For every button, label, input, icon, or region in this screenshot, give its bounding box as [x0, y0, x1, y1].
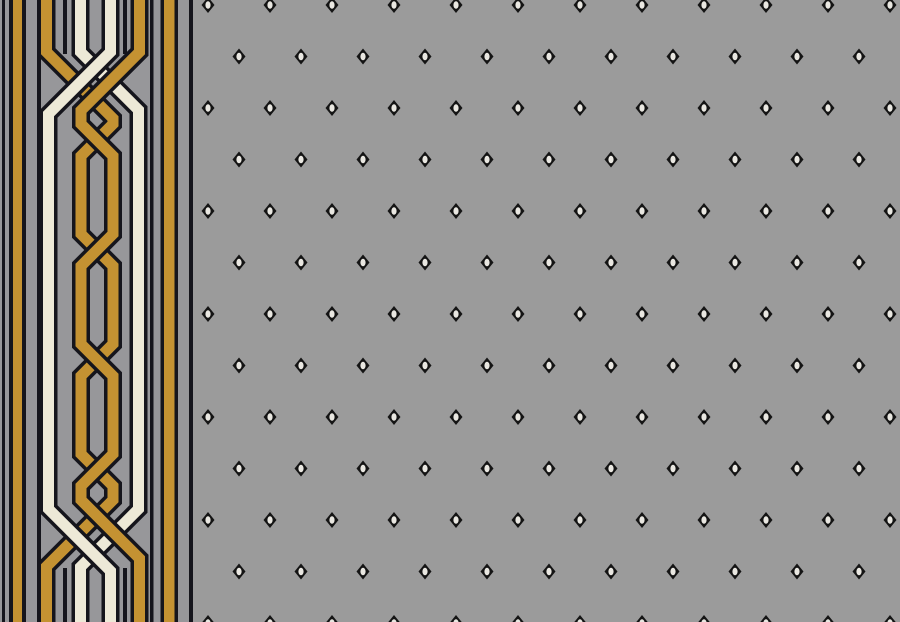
diamond-motif-center [887, 207, 892, 215]
diamond-motif-center [453, 516, 458, 524]
diamond-motif-center [515, 207, 520, 215]
diamond-motif-center [422, 362, 427, 370]
diamond-motif-center [577, 413, 582, 421]
diamond-motif-center [515, 104, 520, 112]
diamond-motif-center [453, 207, 458, 215]
diamond-motif-center [794, 568, 799, 576]
diamond-motif-center [763, 1, 768, 9]
diamond-motif-center [267, 104, 272, 112]
diamond-motif-center [298, 156, 303, 164]
diamond-motif-center [422, 465, 427, 473]
diamond-motif-center [577, 1, 582, 9]
diamond-motif-center [608, 465, 613, 473]
diamond-motif-center [205, 516, 210, 524]
diamond-motif-center [360, 156, 365, 164]
diamond-motif-center [856, 568, 861, 576]
diamond-motif-center [608, 259, 613, 267]
diamond-motif-center [391, 413, 396, 421]
diamond-motif-center [515, 413, 520, 421]
diamond-motif-center [391, 310, 396, 318]
border-stripe [150, 0, 154, 622]
diamond-motif-center [887, 413, 892, 421]
diamond-motif-center [794, 362, 799, 370]
diamond-motif-center [515, 516, 520, 524]
diamond-motif-center [763, 104, 768, 112]
diamond-motif-center [236, 156, 241, 164]
border-stripe [2, 0, 5, 622]
diamond-motif-center [546, 156, 551, 164]
diamond-motif-center [856, 259, 861, 267]
diamond-motif-center [887, 310, 892, 318]
diamond-motif-center [329, 310, 334, 318]
diamond-motif-center [236, 568, 241, 576]
diamond-motif-center [236, 362, 241, 370]
diamond-motif-center [732, 362, 737, 370]
border-stripe [13, 0, 22, 622]
diamond-motif-center [267, 413, 272, 421]
diamond-motif-center [670, 568, 675, 576]
diamond-motif-center [701, 310, 706, 318]
diamond-motif-center [670, 259, 675, 267]
diamond-motif-center [360, 259, 365, 267]
diamond-motif-center [329, 207, 334, 215]
diamond-motif-center [763, 516, 768, 524]
diamond-motif-center [484, 568, 489, 576]
diamond-motif-center [639, 413, 644, 421]
diamond-motif-center [639, 104, 644, 112]
diamond-motif-center [577, 104, 582, 112]
diamond-motif-center [732, 465, 737, 473]
diamond-motif-center [422, 568, 427, 576]
diamond-motif-center [701, 413, 706, 421]
diamond-motif-center [732, 259, 737, 267]
diamond-motif-center [670, 465, 675, 473]
diamond-motif-center [887, 516, 892, 524]
diamond-motif-center [515, 310, 520, 318]
diamond-motif-center [577, 310, 582, 318]
diamond-motif-center [453, 1, 458, 9]
diamond-motif-center [608, 568, 613, 576]
diamond-motif-center [205, 310, 210, 318]
diamond-motif-center [298, 465, 303, 473]
diamond-motif-center [236, 259, 241, 267]
diamond-motif-center [205, 413, 210, 421]
diamond-motif-center [391, 516, 396, 524]
diamond-motif-center [422, 156, 427, 164]
diamond-motif-center [329, 1, 334, 9]
diamond-motif-center [546, 53, 551, 61]
border-stripe [175, 0, 179, 622]
diamond-motif-center [298, 362, 303, 370]
border-stripe [189, 0, 193, 622]
diamond-motif-center [701, 516, 706, 524]
diamond-motif-center [453, 104, 458, 112]
diamond-motif-center [639, 310, 644, 318]
diamond-motif-center [329, 104, 334, 112]
diamond-motif-center [515, 1, 520, 9]
diamond-motif-center [763, 207, 768, 215]
diamond-motif-center [670, 156, 675, 164]
diamond-motif-center [794, 465, 799, 473]
diamond-motif-center [670, 53, 675, 61]
diamond-motif-center [732, 568, 737, 576]
diamond-motif-center [825, 104, 830, 112]
diamond-motif-center [887, 1, 892, 9]
diamond-motif-center [422, 53, 427, 61]
diamond-motif-center [763, 413, 768, 421]
diamond-motif-center [608, 156, 613, 164]
diamond-motif-center [577, 207, 582, 215]
diamond-motif-center [856, 465, 861, 473]
diamond-motif-center [360, 362, 365, 370]
diamond-motif-center [267, 516, 272, 524]
diamond-motif-center [484, 259, 489, 267]
diamond-motif-center [608, 53, 613, 61]
diamond-motif-center [639, 1, 644, 9]
diamond-motif-center [298, 259, 303, 267]
border-stripe [22, 0, 26, 622]
diamond-motif-center [856, 53, 861, 61]
diamond-motif-center [484, 156, 489, 164]
diamond-motif-center [329, 413, 334, 421]
diamond-motif-center [825, 1, 830, 9]
diamond-motif-center [763, 310, 768, 318]
diamond-motif-center [484, 465, 489, 473]
diamond-motif-center [577, 516, 582, 524]
diamond-motif-center [825, 516, 830, 524]
diamond-motif-center [701, 1, 706, 9]
border-stripe [9, 0, 13, 622]
diamond-motif-center [360, 568, 365, 576]
diamond-motif-center [267, 310, 272, 318]
diamond-motif-center [205, 207, 210, 215]
diamond-motif-center [205, 1, 210, 9]
diamond-motif-center [205, 104, 210, 112]
diamond-motif-center [670, 362, 675, 370]
diamond-motif-center [794, 156, 799, 164]
border-stripe [164, 0, 175, 622]
diamond-motif-center [825, 207, 830, 215]
diamond-motif-center [453, 310, 458, 318]
diamond-motif-center [856, 156, 861, 164]
diamond-motif-center [298, 568, 303, 576]
diamond-motif-center [794, 53, 799, 61]
carpet-artwork [0, 0, 900, 622]
diamond-motif-center [484, 362, 489, 370]
diamond-motif-center [360, 53, 365, 61]
diamond-motif-center [391, 207, 396, 215]
diamond-motif-center [329, 516, 334, 524]
diamond-motif-center [391, 104, 396, 112]
diamond-motif-center [546, 362, 551, 370]
diamond-motif-center [732, 156, 737, 164]
diamond-motif-center [298, 53, 303, 61]
border-pattern [0, 0, 193, 622]
diamond-motif-center [484, 53, 489, 61]
diamond-motif-center [701, 207, 706, 215]
border-stripe [161, 0, 165, 622]
diamond-motif-center [546, 568, 551, 576]
diamond-motif-center [639, 207, 644, 215]
diamond-motif-center [546, 465, 551, 473]
diamond-motif-center [794, 259, 799, 267]
diamond-motif-center [608, 362, 613, 370]
diamond-motif-center [360, 465, 365, 473]
diamond-motif-center [732, 53, 737, 61]
diamond-motif-center [825, 310, 830, 318]
diamond-motif-center [887, 104, 892, 112]
diamond-motif-center [546, 259, 551, 267]
diamond-motif-center [267, 1, 272, 9]
diamond-motif-center [391, 1, 396, 9]
diamond-motif-center [422, 259, 427, 267]
diamond-motif-center [825, 413, 830, 421]
diamond-motif-center [236, 53, 241, 61]
diamond-motif-center [267, 207, 272, 215]
diamond-motif-center [701, 104, 706, 112]
diamond-motif-center [236, 465, 241, 473]
diamond-motif-center [856, 362, 861, 370]
diamond-motif-center [639, 516, 644, 524]
diamond-motif-center [453, 413, 458, 421]
